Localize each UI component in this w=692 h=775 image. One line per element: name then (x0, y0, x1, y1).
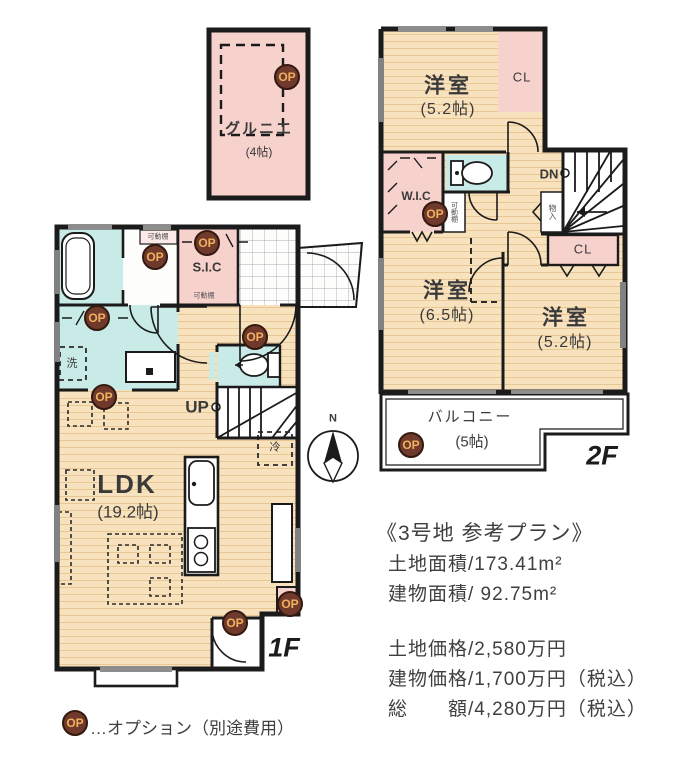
washbasin-icon (126, 352, 175, 382)
bathtub-icon (62, 233, 94, 299)
ldk-name-label: LDK (97, 471, 156, 497)
shelf-label-2f: 可動棚 (451, 202, 458, 223)
shelf-label-sic: 可動棚 (194, 293, 215, 300)
land-price-text: 土地価格/2,580万円 (388, 634, 567, 661)
ldk-size-label: (19.2帖) (97, 504, 158, 521)
kitchen-island (185, 457, 218, 575)
legend-text: …オプション（別途費用） (90, 714, 294, 739)
op-badge-wic: OP (422, 201, 448, 227)
washer-label: 洗 (67, 359, 78, 370)
shelf-label-hall: 可動棚 (148, 234, 169, 241)
closet-top-label: CL (513, 71, 532, 84)
side-counter (272, 504, 292, 582)
toilet-icon-2f (451, 161, 492, 185)
attic-name-label: グルニエ (225, 122, 293, 137)
op-badge-balcony: OP (398, 432, 424, 458)
floor2-tag: 2F (586, 443, 618, 470)
building-area-text: 建物面積/ 92.75m² (388, 579, 557, 606)
op-badge-legend: OP (62, 710, 88, 736)
balcony-name-label: バルコニー (428, 410, 513, 425)
floor1-tag: 1F (268, 635, 300, 662)
compass-north-label: N (329, 414, 337, 425)
attic-size-label: (4帖) (246, 146, 273, 158)
land-area-text: 土地面積/173.41m² (388, 549, 563, 576)
op-badge-washroom: OP (91, 384, 117, 410)
op-badge-attic: OP (274, 64, 300, 90)
wic-label: W.I.C (401, 190, 430, 202)
building-price-text: 建物価格/1,700万円（税込） (388, 664, 647, 691)
attic-plan (209, 30, 308, 198)
bedroom-left-size: (6.5帖) (420, 308, 475, 324)
plan-title: 《3号地 参考プラン》 (376, 517, 594, 547)
sic-label: S.I.C (193, 261, 222, 274)
bedroom-right-name: 洋室 (542, 308, 590, 329)
toilet-door-gap (209, 352, 215, 380)
balcony-size-label: (5帖) (455, 435, 488, 450)
op-badge-hall: OP (84, 305, 110, 331)
closet-mid-label: CL (574, 243, 593, 256)
op-badge-niche: OP (277, 591, 303, 617)
op-badge-pantry: OP (142, 244, 168, 270)
op-badge-sic: OP (194, 230, 220, 256)
entrance-porch (298, 243, 362, 307)
floorplan-page: グルニエ (4帖) 洋室 (5.2帖) CL W.I.C DN 可動棚 物入 C… (0, 0, 692, 775)
op-badge-ldk-door: OP (222, 610, 248, 636)
compass-icon (308, 431, 358, 482)
bedroom-left-name: 洋室 (423, 281, 471, 302)
bedroom-right-size: (5.2帖) (538, 335, 593, 351)
bedroom-top-size: (5.2帖) (421, 102, 476, 118)
down-label: DN (540, 168, 559, 181)
bedroom-top-name: 洋室 (424, 76, 472, 97)
fridge-label: 冷 (270, 443, 281, 454)
storage-label-2f: 物入 (548, 204, 556, 220)
op-badge-toilet-1f: OP (242, 324, 268, 350)
total-price-text: 総 額/4,280万円（税込） (388, 694, 647, 721)
up-label: UP (185, 399, 209, 416)
